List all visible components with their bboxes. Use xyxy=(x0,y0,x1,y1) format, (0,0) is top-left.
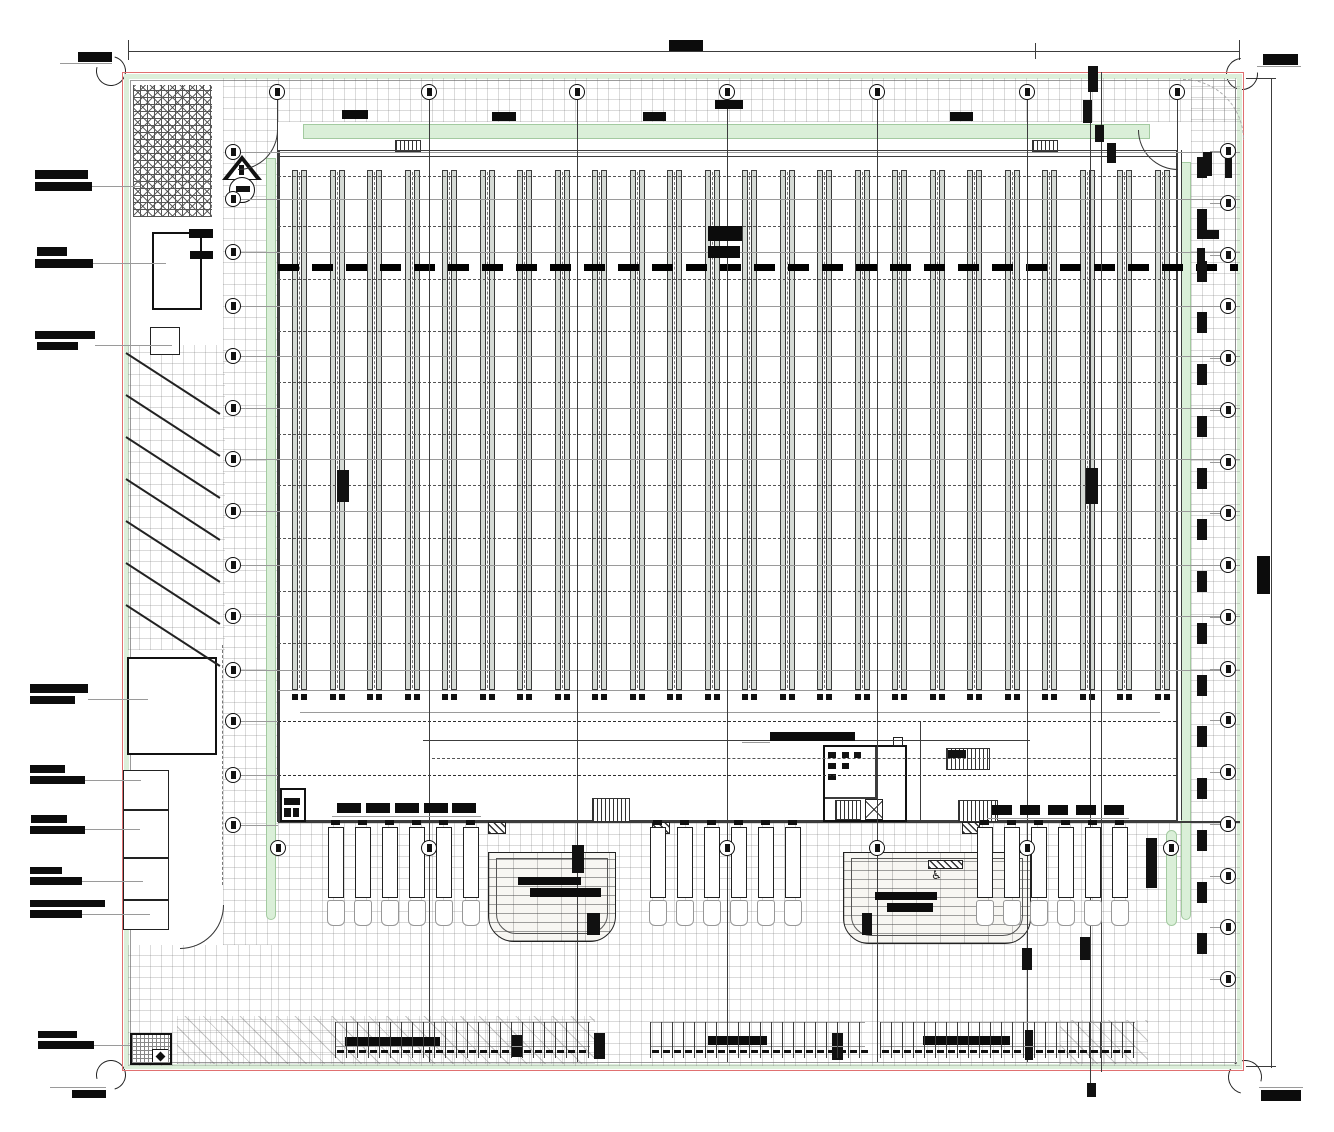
parking-stall-tick xyxy=(555,1022,556,1058)
panel-centerline xyxy=(1012,172,1013,688)
panel-row-bar xyxy=(301,170,307,690)
panel-centerline xyxy=(337,172,338,688)
panel-row-bar xyxy=(517,170,523,690)
wheel-stop xyxy=(370,1050,377,1053)
grid-bubble xyxy=(1220,557,1236,573)
parking-stall-tick xyxy=(1111,1022,1112,1058)
wheel-stop xyxy=(491,1050,498,1053)
redacted-label xyxy=(38,1041,94,1049)
black-marker xyxy=(1025,1030,1033,1060)
aisle-dashed-line xyxy=(432,758,1176,759)
parking-stall-tick xyxy=(1023,1022,1024,1058)
redacted-label xyxy=(30,684,88,693)
redacted-label xyxy=(770,732,855,741)
panel-centerline xyxy=(937,172,938,688)
panel-centerline xyxy=(824,172,825,688)
black-marker xyxy=(1095,125,1104,142)
parking-stall-tick xyxy=(749,1022,750,1058)
parking-stall-tick xyxy=(880,1022,881,1058)
panel-footing xyxy=(292,694,298,700)
panel-row-bar xyxy=(901,170,907,690)
dock-bumper xyxy=(439,820,448,825)
wheel-stop xyxy=(1069,1050,1076,1053)
landscape-strip-east xyxy=(1181,162,1191,920)
black-marker xyxy=(587,913,600,935)
panel-row-bar xyxy=(1014,170,1020,690)
utility-marker xyxy=(1197,468,1207,489)
wheel-stop xyxy=(718,1050,725,1053)
parking-stall-tick xyxy=(694,1022,695,1058)
drive-edge-dashed xyxy=(222,645,223,885)
grid-bubble xyxy=(421,840,437,856)
dock-bumper xyxy=(412,820,421,825)
grid-bubble xyxy=(1220,454,1236,470)
leader-line xyxy=(1257,66,1301,67)
grid-bubble xyxy=(269,84,285,100)
redacted-dimension-bar xyxy=(1104,805,1124,815)
panel-footing xyxy=(489,694,495,700)
grid-bubble xyxy=(1220,971,1236,987)
top-dimension-extension-left xyxy=(128,40,129,60)
dock-stair-west xyxy=(592,798,630,822)
west-bay-3 xyxy=(123,858,169,900)
firebreak-heavy-dashed-line xyxy=(278,264,1238,271)
panel-row-bar xyxy=(742,170,748,690)
panel-footing xyxy=(751,694,757,700)
panel-footing xyxy=(526,694,532,700)
wheel-stop xyxy=(1014,1050,1021,1053)
grid-line-vertical-extension xyxy=(429,822,430,1062)
leader-line xyxy=(94,1045,130,1046)
panel-footing xyxy=(592,694,598,700)
panel-row-bar xyxy=(1117,170,1123,690)
grid-bubble xyxy=(1019,84,1035,100)
leader-line xyxy=(85,780,141,781)
dock-bumper xyxy=(1007,820,1016,825)
parking-stall-tick xyxy=(346,1022,347,1058)
grid-line-vertical-extension xyxy=(1027,822,1028,1062)
wheel-stop xyxy=(773,1050,780,1053)
truck-trailer xyxy=(436,827,452,898)
parking-stall-tick xyxy=(891,1022,892,1058)
panel-footing xyxy=(405,694,411,700)
wheel-stop xyxy=(502,1050,509,1053)
panel-row-bar xyxy=(751,170,757,690)
utility-marker xyxy=(1197,261,1207,282)
panel-row-bar xyxy=(414,170,420,690)
panel-centerline xyxy=(599,172,600,688)
grid-bubble xyxy=(225,503,241,519)
wheel-stop xyxy=(828,1050,835,1053)
black-marker xyxy=(1146,838,1157,888)
leader-line xyxy=(50,1087,106,1088)
grid-bubble xyxy=(225,713,241,729)
leader-line xyxy=(60,63,112,64)
panel-row-bar xyxy=(864,170,870,690)
truck-trailer xyxy=(328,827,344,898)
wheel-stop xyxy=(1047,1050,1054,1053)
parking-stall-tick xyxy=(957,1022,958,1058)
black-marker xyxy=(572,845,584,873)
outbuilding-3 xyxy=(127,657,217,755)
bubble-leader xyxy=(241,252,267,253)
leader-line xyxy=(88,699,148,700)
panel-footing xyxy=(817,694,823,700)
redacted-dimension-bar xyxy=(366,803,390,813)
wheel-stop xyxy=(751,1050,758,1053)
utility-marker xyxy=(1197,519,1207,540)
panel-row-bar xyxy=(1005,170,1011,690)
panel-footing xyxy=(714,694,720,700)
wheel-stop xyxy=(959,1050,966,1053)
redacted-label xyxy=(518,877,581,885)
parking-row-line xyxy=(880,1022,1135,1023)
truck-cab xyxy=(1003,900,1021,926)
office-fixture xyxy=(842,763,849,769)
panel-centerline xyxy=(1049,172,1050,688)
wheel-stop xyxy=(663,1050,670,1053)
wheel-stop xyxy=(1102,1050,1109,1053)
wheel-stop xyxy=(948,1050,955,1053)
bubble-leader xyxy=(241,721,267,722)
panel-centerline xyxy=(1124,172,1125,688)
pump-room-label xyxy=(284,798,300,805)
redacted-label xyxy=(1263,54,1298,65)
grid-line-vertical xyxy=(1027,152,1028,822)
utility-marker xyxy=(1197,209,1207,230)
parking-stall-tick xyxy=(423,1022,424,1058)
parking-stall-tick xyxy=(390,1022,391,1058)
wheel-stop xyxy=(762,1050,769,1053)
truck-trailer xyxy=(1112,827,1128,898)
parking-stall-tick xyxy=(511,1022,512,1058)
paving-angled-parking xyxy=(128,345,225,650)
parking-stall-tick xyxy=(489,1022,490,1058)
landscape-strip-west xyxy=(266,158,276,920)
redacted-dimension-bar xyxy=(992,805,1012,815)
panel-row-bar xyxy=(817,170,823,690)
redacted-dimension-bar xyxy=(1076,805,1096,815)
wheel-stop xyxy=(557,1050,564,1053)
grid-bubble xyxy=(1220,298,1236,314)
wheel-stop xyxy=(970,1050,977,1053)
west-bay-2 xyxy=(123,810,169,858)
wheel-stop xyxy=(1091,1050,1098,1053)
panel-row-bar xyxy=(564,170,570,690)
grid-bubble xyxy=(1220,661,1236,677)
wheel-stop xyxy=(337,1050,344,1053)
redacted-dimension-bar xyxy=(452,803,476,813)
wheel-stop xyxy=(839,1050,846,1053)
redacted-label xyxy=(35,331,95,339)
wheel-stop xyxy=(359,1050,366,1053)
dock-bumper xyxy=(331,820,340,825)
wheel-stop xyxy=(414,1050,421,1053)
redacted-label xyxy=(923,1036,1010,1045)
wheel-stop xyxy=(1080,1050,1087,1053)
black-marker xyxy=(1107,143,1116,163)
dimension-chain-line xyxy=(987,818,1129,819)
dock-bumper xyxy=(385,820,394,825)
panel-centerline xyxy=(637,172,638,688)
redacted-label xyxy=(72,1090,106,1098)
panel-footing xyxy=(855,694,861,700)
panel-row-bar xyxy=(826,170,832,690)
black-marker xyxy=(337,470,349,502)
panel-row-bar xyxy=(376,170,382,690)
truck-cab xyxy=(462,900,480,926)
wheel-stop xyxy=(535,1050,542,1053)
black-marker xyxy=(1087,1083,1096,1097)
truck-trailer xyxy=(1004,827,1020,898)
panel-footing xyxy=(339,694,345,700)
parking-stall-tick xyxy=(804,1022,805,1058)
truck-trailer xyxy=(1058,827,1074,898)
parking-stall-tick xyxy=(815,1022,816,1058)
redacted-label xyxy=(1257,556,1270,594)
redacted-label xyxy=(30,776,85,784)
parking-stall-tick xyxy=(902,1022,903,1058)
truck-trailer xyxy=(731,827,747,898)
wheel-stop xyxy=(784,1050,791,1053)
utility-marker xyxy=(1197,675,1207,696)
wheel-stop xyxy=(685,1050,692,1053)
section-line xyxy=(920,722,921,822)
leader-line xyxy=(1259,1087,1303,1088)
panel-centerline xyxy=(787,172,788,688)
redacted-label xyxy=(875,892,937,900)
grid-bubble xyxy=(1220,868,1236,884)
wheel-stop xyxy=(696,1050,703,1053)
parking-stall-tick xyxy=(1045,1022,1046,1058)
truck-cab xyxy=(327,900,345,926)
grid-bubble xyxy=(225,348,241,364)
grid-bubble xyxy=(1163,840,1179,856)
parking-stall-tick xyxy=(445,1022,446,1058)
parking-stall-tick xyxy=(1133,1022,1134,1058)
panel-centerline xyxy=(374,172,375,688)
redacted-label xyxy=(37,247,67,256)
panel-footing xyxy=(1164,694,1170,700)
redacted-dimension-bar xyxy=(1048,805,1068,815)
grid-bubble xyxy=(569,84,585,100)
grid-bubble xyxy=(1220,919,1236,935)
west-bay-4 xyxy=(123,900,169,930)
panel-row-bar xyxy=(480,170,486,690)
redacted-label xyxy=(708,226,742,241)
panel-row-bar xyxy=(555,170,561,690)
panel-footing xyxy=(742,694,748,700)
detention-basin-hatch xyxy=(133,85,212,217)
dock-bumper xyxy=(1115,820,1124,825)
dock-bumper xyxy=(653,820,662,825)
parking-stall-tick xyxy=(990,1022,991,1058)
parking-stall-tick xyxy=(650,1022,651,1058)
grid-bubble xyxy=(1220,402,1236,418)
dock-stair-label xyxy=(948,750,966,758)
grid-bubble xyxy=(225,662,241,678)
parking-stall-tick xyxy=(727,1022,728,1058)
black-marker xyxy=(1086,468,1098,504)
leader-line xyxy=(82,881,143,882)
panel-row-bar xyxy=(967,170,973,690)
utility-marker xyxy=(1197,364,1207,385)
panel-footing xyxy=(1117,694,1123,700)
grid-bubble xyxy=(1220,764,1236,780)
parking-stall-tick xyxy=(705,1022,706,1058)
grid-bubble xyxy=(1220,350,1236,366)
parking-stall-tick xyxy=(738,1022,739,1058)
redacted-label xyxy=(30,877,82,885)
redacted-label xyxy=(530,888,601,897)
parking-stall-tick xyxy=(661,1022,662,1058)
panel-row-bar xyxy=(330,170,336,690)
bubble-leader xyxy=(241,152,267,153)
top-dimension-line xyxy=(128,51,1240,52)
grid-bubble xyxy=(719,84,735,100)
bubble-leader xyxy=(241,459,267,460)
right-dimension-line xyxy=(1271,78,1272,1068)
truck-cab xyxy=(381,900,399,926)
panel-row-bar xyxy=(892,170,898,690)
grid-bubble xyxy=(225,767,241,783)
truck-trailer xyxy=(355,827,371,898)
truck-cab xyxy=(676,900,694,926)
truck-trailer xyxy=(785,827,801,898)
wheel-stop xyxy=(795,1050,802,1053)
panel-row-bar xyxy=(976,170,982,690)
parking-stall-tick xyxy=(683,1022,684,1058)
parking-stall-tick xyxy=(1100,1022,1101,1058)
redacted-label xyxy=(669,40,703,51)
wheel-stop xyxy=(850,1050,857,1053)
panel-row-bar xyxy=(1164,170,1170,690)
site-plan-sheet: ♿ xyxy=(0,0,1334,1132)
panel-centerline xyxy=(449,172,450,688)
grid-bubble xyxy=(1220,712,1236,728)
grid-bubble xyxy=(1220,816,1236,832)
utility-marker xyxy=(1197,623,1207,644)
utility-marker xyxy=(1197,830,1207,851)
bubble-leader xyxy=(241,199,267,200)
dimension-chain-line xyxy=(332,816,481,817)
grid-bubble xyxy=(1220,143,1236,159)
parking-stall-tick xyxy=(672,1022,673,1058)
parking-stall-tick xyxy=(946,1022,947,1058)
parking-stall-tick xyxy=(1012,1022,1013,1058)
wheel-stop xyxy=(817,1050,824,1053)
panel-footing xyxy=(1051,694,1057,700)
truck-cab xyxy=(435,900,453,926)
parking-stall-tick xyxy=(467,1022,468,1058)
parking-stall-tick xyxy=(979,1022,980,1058)
office-elevator xyxy=(865,799,883,820)
panel-footing xyxy=(555,694,561,700)
grid-bubble xyxy=(869,840,885,856)
panel-row-bar xyxy=(1051,170,1057,690)
panel-footing xyxy=(826,694,832,700)
truck-trailer xyxy=(1031,827,1047,898)
parking-stall-tick xyxy=(412,1022,413,1058)
dock-bumper xyxy=(761,820,770,825)
parking-stall-tick xyxy=(1089,1022,1090,1058)
redacted-label xyxy=(342,110,368,119)
parking-stall-tick xyxy=(848,1022,849,1058)
panel-footing xyxy=(1042,694,1048,700)
truck-cab xyxy=(1111,900,1129,926)
parking-row-line xyxy=(335,1046,590,1047)
dock-bumper xyxy=(980,820,989,825)
panel-row-bar xyxy=(667,170,673,690)
panel-row-bar xyxy=(855,170,861,690)
panel-footing xyxy=(564,694,570,700)
dock-bumper xyxy=(1061,820,1070,825)
parking-stall-tick xyxy=(566,1022,567,1058)
wheel-stop xyxy=(480,1050,487,1053)
outbuilding-2 xyxy=(150,327,180,355)
west-bay-1 xyxy=(123,770,169,810)
dock-bumper xyxy=(734,820,743,825)
grid-bubble xyxy=(225,400,241,416)
grid-line-stub xyxy=(277,100,278,152)
wheel-stop xyxy=(893,1050,900,1053)
wheel-stop xyxy=(436,1050,443,1053)
bubble-leader xyxy=(241,408,267,409)
truck-cab xyxy=(757,900,775,926)
utility-section-line xyxy=(1090,72,1091,1083)
utility-marker xyxy=(1197,778,1207,799)
parking-stall-tick xyxy=(782,1022,783,1058)
outbuilding-1 xyxy=(152,232,202,310)
grid-bubble xyxy=(225,244,241,260)
truck-cab xyxy=(730,900,748,926)
utility-marker xyxy=(1197,157,1207,178)
black-marker xyxy=(1225,158,1232,178)
redacted-label xyxy=(492,112,516,121)
wheel-stop xyxy=(546,1050,553,1053)
wheel-stop xyxy=(348,1050,355,1053)
redacted-label xyxy=(35,259,93,268)
grid-line-vertical xyxy=(877,152,878,822)
panel-footing xyxy=(930,694,936,700)
redacted-label xyxy=(35,182,92,191)
wheel-stop xyxy=(469,1050,476,1053)
panel-footing xyxy=(601,694,607,700)
accessible-parking-icon: ♿ xyxy=(931,869,942,881)
parking-stall-tick xyxy=(456,1022,457,1058)
redacted-label xyxy=(1261,1090,1301,1101)
grid-line-vertical-extension xyxy=(877,822,878,1062)
panel-row-bar xyxy=(1155,170,1161,690)
wheel-stop xyxy=(447,1050,454,1053)
utility-marker xyxy=(1197,571,1207,592)
leader-line xyxy=(742,742,770,743)
panel-footing xyxy=(301,694,307,700)
wheel-stop xyxy=(740,1050,747,1053)
redacted-label xyxy=(708,246,740,258)
panel-centerline xyxy=(674,172,675,688)
wheel-stop xyxy=(861,1050,868,1053)
structure-east-edge xyxy=(1176,150,1178,822)
black-marker xyxy=(1022,948,1032,970)
panel-centerline xyxy=(974,172,975,688)
truck-trailer xyxy=(758,827,774,898)
grid-bubble xyxy=(1220,195,1236,211)
bubble-leader xyxy=(241,616,267,617)
panel-footing xyxy=(789,694,795,700)
parking-stall-tick xyxy=(368,1022,369,1058)
panel-footing xyxy=(1155,694,1161,700)
